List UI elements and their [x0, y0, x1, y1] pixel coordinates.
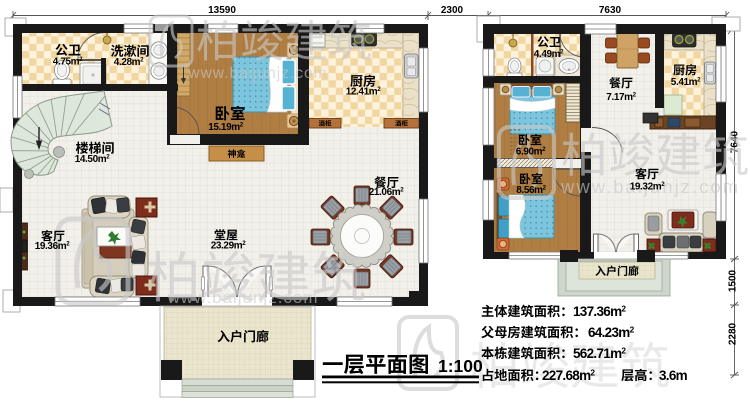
svg-text:4.75m2: 4.75m2 [53, 56, 83, 67]
svg-text:3.6m: 3.6m [659, 368, 688, 383]
svg-text:1500: 1500 [728, 269, 739, 292]
svg-text:5.41m2: 5.41m2 [671, 77, 701, 88]
svg-text:227.68m2: 227.68m2 [542, 367, 595, 383]
svg-text:www.baijunjz.com: www.baijunjz.com [187, 65, 327, 82]
svg-text:7630: 7630 [599, 5, 622, 16]
svg-text:4.49m2: 4.49m2 [534, 49, 564, 60]
svg-text:www.baijunjz.com: www.baijunjz.com [166, 288, 318, 307]
svg-text:64.23m2: 64.23m2 [588, 324, 635, 340]
svg-text:19.36m2: 19.36m2 [35, 241, 71, 252]
svg-text:137.36m2: 137.36m2 [573, 303, 626, 319]
svg-text:19.32m2: 19.32m2 [630, 181, 666, 192]
svg-text:2300: 2300 [441, 5, 464, 16]
svg-text:8.56m2: 8.56m2 [516, 185, 546, 196]
svg-text:13590: 13590 [208, 5, 236, 16]
svg-text:4.28m2: 4.28m2 [114, 57, 144, 68]
svg-text:7.17m2: 7.17m2 [606, 92, 636, 103]
svg-text:2280: 2280 [728, 322, 739, 345]
svg-text:14.50m2: 14.50m2 [75, 154, 111, 165]
svg-text:21.06m2: 21.06m2 [369, 187, 405, 198]
svg-text:1:100: 1:100 [438, 356, 483, 376]
svg-text:12.41m2: 12.41m2 [346, 86, 382, 97]
svg-text:562.71m2: 562.71m2 [573, 345, 626, 361]
svg-text:6.90m2: 6.90m2 [516, 146, 546, 157]
svg-text:23.29m2: 23.29m2 [211, 240, 247, 251]
svg-text:15.19m2: 15.19m2 [208, 122, 244, 133]
